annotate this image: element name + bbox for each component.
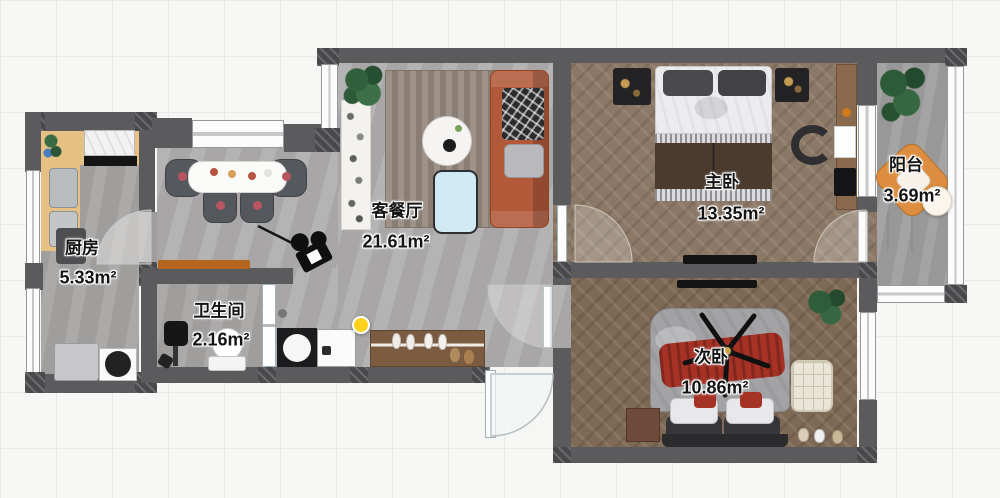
south-corridor-wall bbox=[141, 367, 490, 383]
console-shelf bbox=[158, 260, 250, 269]
room-area: 13.35m² bbox=[697, 204, 764, 225]
table-decor bbox=[443, 139, 456, 152]
room-area: 5.33m² bbox=[59, 268, 116, 289]
wall-corner-block bbox=[25, 372, 45, 393]
slippers bbox=[832, 430, 843, 444]
room-name: 卫生间 bbox=[194, 297, 245, 322]
yellow-point-marker[interactable] bbox=[352, 316, 370, 334]
room-name: 厨房 bbox=[65, 234, 99, 259]
kitchen-right-wall bbox=[139, 130, 155, 212]
dining-table bbox=[188, 161, 287, 193]
wall-corner-block bbox=[258, 367, 276, 383]
toilet-tank bbox=[208, 356, 246, 371]
nightstand bbox=[775, 68, 809, 102]
balcony-right-window bbox=[947, 66, 964, 285]
second-bedroom-left-wall-lower bbox=[553, 348, 571, 447]
room-name: 次卧 bbox=[694, 343, 728, 368]
dining-window bbox=[192, 120, 284, 148]
slippers bbox=[814, 429, 825, 443]
room-name: 客餐厅 bbox=[372, 197, 423, 222]
room-label-balcony: 阳台 bbox=[889, 151, 923, 176]
living-master-divider-wall bbox=[553, 63, 571, 205]
room-name: 主卧 bbox=[705, 168, 739, 193]
room-label-master-bedroom: 主卧 bbox=[705, 168, 739, 193]
cooking-pot bbox=[105, 351, 131, 377]
master-balcony-wall-upper bbox=[857, 63, 877, 105]
second-bedroom-tv bbox=[677, 280, 757, 288]
pillow bbox=[718, 70, 766, 96]
second-bedroom-right-wall-upper bbox=[859, 278, 877, 312]
kitchen-left-wall bbox=[25, 112, 41, 172]
floor-drain bbox=[278, 309, 287, 318]
wall-corner-block bbox=[859, 262, 877, 278]
shoes bbox=[438, 334, 447, 350]
second-bedroom-doorway-floor bbox=[553, 285, 571, 348]
washer-dial bbox=[322, 346, 331, 355]
wall-corner-block bbox=[553, 447, 571, 463]
desk-chair bbox=[791, 125, 834, 165]
refrigerator bbox=[54, 343, 99, 381]
balcony-bottom-window bbox=[877, 285, 945, 303]
armchair bbox=[791, 360, 833, 412]
bathroom-left-wall bbox=[141, 284, 157, 367]
dresser bbox=[626, 408, 660, 442]
shoes bbox=[424, 333, 433, 349]
shoes bbox=[392, 333, 401, 349]
room-area-master-bedroom: 13.35m² bbox=[697, 204, 764, 225]
kitchen-sink bbox=[49, 168, 78, 208]
balcony-plant-icon bbox=[878, 64, 930, 128]
kitchen-doorway-floor bbox=[139, 212, 157, 265]
shower-head bbox=[164, 321, 188, 346]
room-label-second-bedroom: 次卧 bbox=[694, 343, 728, 368]
kitchen-window-lower bbox=[26, 288, 40, 374]
room-label-kitchen: 厨房 bbox=[65, 234, 99, 259]
sofa-cushion bbox=[504, 144, 544, 178]
room-name: 阳台 bbox=[889, 151, 923, 176]
coffee-table bbox=[422, 116, 472, 166]
wall-corner-block bbox=[857, 447, 877, 463]
laptop bbox=[834, 168, 856, 196]
master-balcony-wall-mid bbox=[857, 197, 877, 212]
room-area-living-dining: 21.61m² bbox=[362, 232, 429, 253]
nightstand bbox=[613, 68, 651, 105]
living-plant-icon bbox=[343, 64, 389, 109]
north-exterior-wall bbox=[317, 48, 967, 63]
second-bedroom-bottom-wall bbox=[553, 447, 877, 463]
shoes bbox=[406, 334, 415, 350]
pillow bbox=[663, 70, 713, 96]
cooktop bbox=[84, 156, 137, 166]
dining-window-jamb bbox=[152, 118, 192, 148]
second-bedroom-door-leaf bbox=[543, 286, 553, 348]
master-door-leaf bbox=[557, 205, 567, 262]
laundry-basin bbox=[283, 334, 311, 362]
room-label-bathroom: 卫生间 bbox=[194, 297, 245, 322]
table-plant-icon bbox=[455, 125, 462, 132]
blue-ottoman bbox=[433, 170, 478, 234]
entry-door-swing bbox=[491, 374, 553, 436]
room-area: 21.61m² bbox=[362, 232, 429, 253]
entry-door-leaf bbox=[485, 370, 496, 438]
room-area: 2.16m² bbox=[192, 330, 249, 351]
room-area-second-bedroom: 10.86m² bbox=[681, 378, 748, 399]
slippers bbox=[798, 428, 809, 442]
living-west-window bbox=[321, 64, 338, 130]
inter-bedroom-wall bbox=[553, 262, 877, 278]
balcony-door-leaf bbox=[858, 211, 868, 262]
room-area-balcony: 3.69m² bbox=[883, 186, 940, 207]
shoes bbox=[450, 348, 460, 362]
wall-corner-block bbox=[553, 262, 571, 278]
shoes bbox=[464, 350, 474, 364]
kitchen-left-pier bbox=[25, 263, 43, 290]
kitchen-window-upper bbox=[26, 170, 40, 265]
room-label-living-dining: 客餐厅 bbox=[372, 197, 423, 222]
room-area-kitchen: 5.33m² bbox=[59, 268, 116, 289]
master-balcony-window bbox=[858, 105, 876, 197]
second-bedroom-right-wall-lower bbox=[859, 400, 877, 447]
bed-runner-stripe bbox=[655, 134, 772, 143]
kitchen-plant-icon bbox=[43, 132, 63, 162]
pebble-runner bbox=[341, 100, 371, 230]
second-bedroom-window bbox=[860, 312, 876, 400]
plaid-blanket bbox=[502, 88, 544, 140]
desk-decor bbox=[842, 108, 851, 117]
room-area: 10.86m² bbox=[681, 378, 748, 399]
table-settings bbox=[210, 168, 218, 176]
range-hood bbox=[84, 130, 135, 156]
bathroom-top-wall bbox=[141, 268, 293, 284]
washing-machine bbox=[317, 329, 356, 367]
second-bedroom-plant-icon bbox=[803, 286, 851, 326]
wall-corner-block bbox=[945, 48, 967, 66]
chair-cushions bbox=[178, 172, 187, 181]
desk-papers bbox=[834, 126, 856, 158]
room-area: 3.69m² bbox=[883, 186, 940, 207]
master-tv bbox=[683, 255, 757, 264]
wall-corner-block bbox=[315, 128, 340, 152]
floor-plan: 厨房 5.33m² 卫生间 2.16m² 客餐厅 21.61m² 主卧 13.3… bbox=[0, 0, 1000, 498]
wall-corner-block bbox=[350, 367, 368, 383]
headboard bbox=[662, 434, 788, 447]
shower-stand bbox=[173, 346, 178, 366]
second-bedroom-left-wall-upper bbox=[553, 278, 571, 285]
room-area-bathroom: 2.16m² bbox=[192, 330, 249, 351]
bathroom-door bbox=[262, 284, 276, 367]
wall-corner-block bbox=[945, 285, 967, 303]
